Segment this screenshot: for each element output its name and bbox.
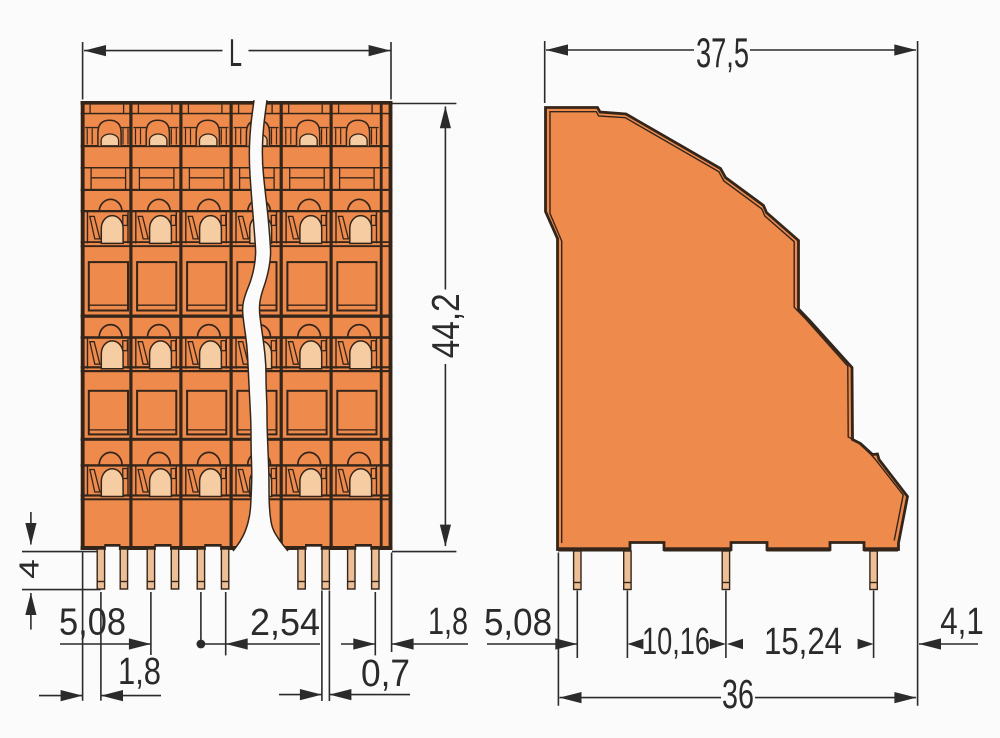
svg-text:5,08: 5,08 <box>484 602 552 644</box>
svg-text:4: 4 <box>14 559 45 579</box>
svg-text:1,8: 1,8 <box>428 601 468 643</box>
svg-text:15,24: 15,24 <box>764 621 842 663</box>
svg-text:L: L <box>229 32 242 75</box>
svg-text:44,2: 44,2 <box>425 293 468 358</box>
svg-text:10,16: 10,16 <box>642 621 710 663</box>
svg-text:4,1: 4,1 <box>940 601 984 643</box>
svg-text:1,8: 1,8 <box>118 651 161 693</box>
svg-text:0,7: 0,7 <box>361 653 410 695</box>
svg-text:36: 36 <box>722 671 754 717</box>
svg-text:2,54: 2,54 <box>250 602 320 644</box>
svg-text:37,5: 37,5 <box>696 29 749 76</box>
svg-text:5,08: 5,08 <box>59 602 126 644</box>
